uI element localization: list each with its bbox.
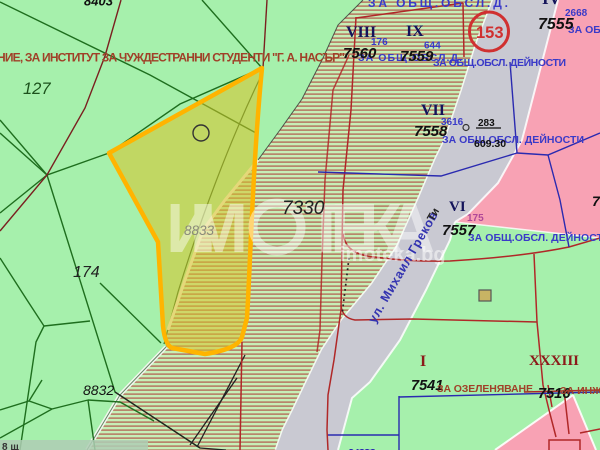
svg-text:8832: 8832 <box>83 382 114 398</box>
svg-text:174: 174 <box>73 264 100 281</box>
svg-text:7330: 7330 <box>282 198 325 219</box>
svg-text:ЗА ОБЩ.ОБСЛ. ДЕЙНОСТИ: ЗА ОБЩ.ОБСЛ. ДЕЙНОСТИ <box>433 56 566 69</box>
svg-text:ЗА ИНЖ.: ЗА ИНЖ. <box>560 385 600 397</box>
svg-text:3616: 3616 <box>441 117 464 128</box>
svg-text:ЗА ОБЩ.ОБСЛ. ДЕЙНОСТ: ЗА ОБЩ.ОБСЛ. ДЕЙНОСТ <box>468 231 600 244</box>
svg-text:НИЕ, ЗА ИНСТИТУТ ЗА ЧУЖДЕСТРАН: НИЕ, ЗА ИНСТИТУТ ЗА ЧУЖДЕСТРАННИ СТУДЕНТ… <box>0 51 345 65</box>
svg-text:75: 75 <box>592 193 600 209</box>
svg-text:175: 175 <box>467 213 484 224</box>
svg-text:8833: 8833 <box>184 223 215 238</box>
svg-text:ЗА ОЗЕЛЕНЯВАНЕ: ЗА ОЗЕЛЕНЯВАНЕ <box>437 383 533 395</box>
svg-text:XXXIII: XXXIII <box>529 353 579 369</box>
svg-text:2668: 2668 <box>565 8 588 19</box>
svg-text:ЗА ОБЩ.ОБСЛ.Д.: ЗА ОБЩ.ОБСЛ.Д. <box>368 0 508 10</box>
svg-text:176: 176 <box>371 37 388 48</box>
svg-text:153: 153 <box>476 24 504 42</box>
svg-text:283: 283 <box>478 118 495 129</box>
svg-text:IV: IV <box>542 0 562 8</box>
svg-text:VI: VI <box>449 199 466 215</box>
svg-text:7557: 7557 <box>442 222 476 239</box>
svg-text:609.30: 609.30 <box>474 138 506 150</box>
svg-text:ЗА ОБЩ.ОБСЛ. ДЕЙНОСТИ: ЗА ОБЩ.ОБСЛ. ДЕЙНОСТИ <box>442 133 584 146</box>
svg-text:IX: IX <box>406 23 424 40</box>
svg-text:127: 127 <box>23 80 51 98</box>
svg-text:644: 644 <box>424 41 441 52</box>
svg-text:imoteka.bg: imoteka.bg <box>340 244 446 266</box>
svg-text:I: I <box>420 353 426 370</box>
svg-text:8 щ: 8 щ <box>2 442 19 450</box>
svg-text:8403: 8403 <box>84 0 114 9</box>
